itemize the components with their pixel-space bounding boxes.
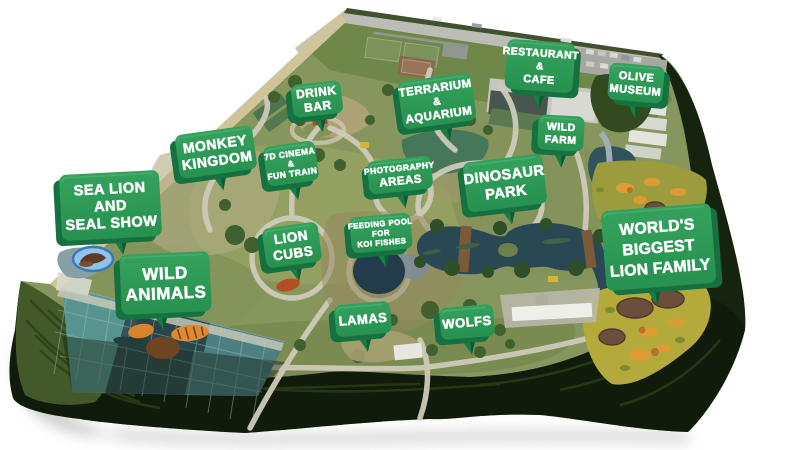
svg-text:WILD: WILD [547,121,576,134]
svg-text:&: & [536,61,544,73]
svg-text:CAFE: CAFE [523,73,555,87]
svg-text:&: & [432,95,442,108]
svg-text:FARM: FARM [544,133,576,147]
svg-text:WILD: WILD [142,263,188,284]
svg-text:AND: AND [94,198,128,216]
svg-text:ANIMALS: ANIMALS [125,282,207,305]
